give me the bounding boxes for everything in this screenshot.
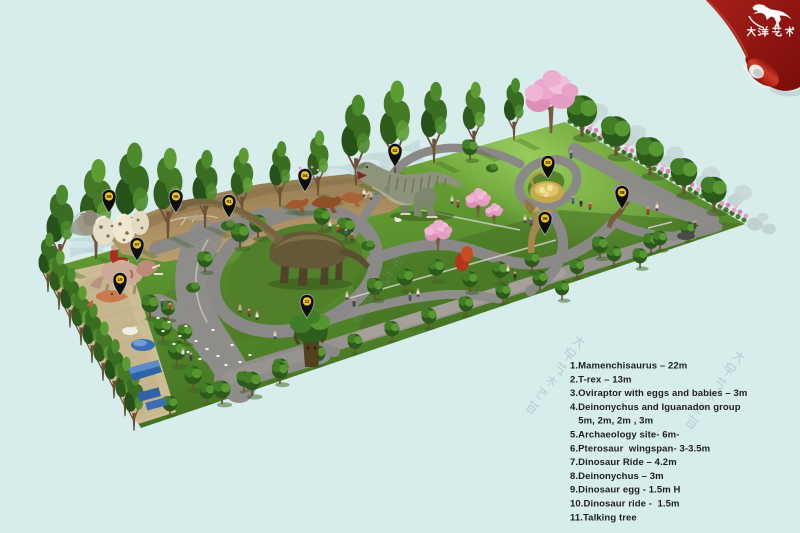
svg-text:11: 11 (305, 299, 310, 304)
svg-text:06: 06 (542, 216, 548, 221)
svg-text:02: 02 (392, 148, 398, 153)
svg-text:6.Pterosaur wingspan- 3-3.5m: 6.Pterosaur wingspan- 3-3.5m (570, 443, 710, 454)
svg-text:5.Archaeology site- 6m-: 5.Archaeology site- 6m- (570, 430, 679, 441)
svg-text:4.Deinonychus and Iguanadon gr: 4.Deinonychus and Iguanadon group (570, 402, 741, 413)
svg-text:07: 07 (134, 242, 140, 247)
svg-text:04: 04 (302, 173, 308, 178)
svg-text:01: 01 (226, 199, 232, 204)
svg-text:08: 08 (619, 190, 625, 195)
svg-text:5m, 2m, 2m , 3m: 5m, 2m, 2m , 3m (570, 416, 653, 427)
svg-text:10: 10 (117, 277, 123, 282)
svg-text:10.Dinosaur ride - 1.5m: 10.Dinosaur ride - 1.5m (570, 499, 680, 510)
svg-text:8.Deinonychus – 3m: 8.Deinonychus – 3m (570, 471, 664, 482)
svg-text:3.Oviraptor with eggs and babi: 3.Oviraptor with eggs and babies – 3m (570, 388, 747, 399)
svg-text:11.Talking tree: 11.Talking tree (570, 512, 637, 523)
svg-text:03: 03 (545, 160, 551, 165)
svg-text:09: 09 (106, 194, 112, 199)
svg-text:2.T-rex – 13m: 2.T-rex – 13m (570, 374, 632, 385)
svg-text:05: 05 (173, 194, 179, 199)
svg-text:9.Dinosaur egg - 1.5m H: 9.Dinosaur egg - 1.5m H (570, 485, 681, 496)
svg-text:7.Dinosaur Ride – 4.2m: 7.Dinosaur Ride – 4.2m (570, 457, 677, 468)
svg-text:1.Mamenchisaurus – 22m: 1.Mamenchisaurus – 22m (570, 361, 687, 372)
